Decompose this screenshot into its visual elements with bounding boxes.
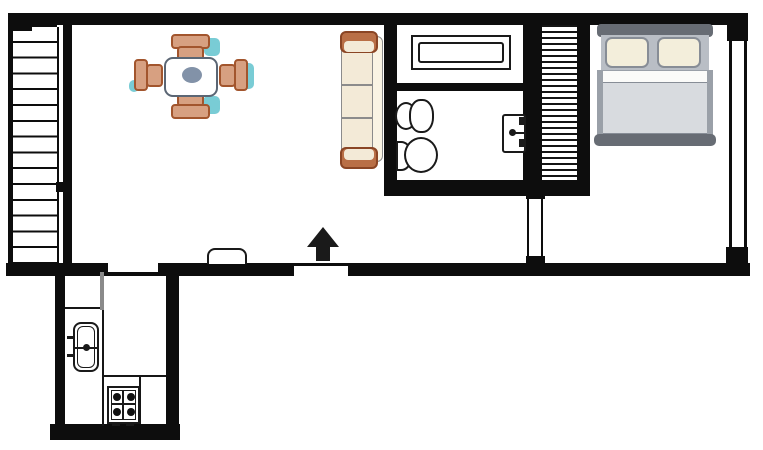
faucet-handle-icon [67, 336, 73, 339]
dining-chair-west-seat [146, 64, 163, 87]
dining-table-centerpiece [182, 67, 202, 83]
kitchen-bottom-wall [50, 424, 180, 440]
bathtub-basin [418, 42, 504, 63]
entrance-arrow-icon [305, 226, 341, 262]
bed-rail-left [597, 70, 603, 136]
bed [601, 82, 709, 134]
floor-plan [0, 0, 763, 450]
bathroom-closet-wall [523, 25, 542, 196]
sofa [341, 50, 373, 150]
bed-pillow-right [657, 37, 701, 68]
staircase-stringer-line [57, 27, 59, 263]
kitchen-door-opening [108, 263, 158, 272]
closet-hatch [542, 25, 577, 178]
tap-icon [509, 129, 516, 136]
kitchen-door-leaf [100, 272, 104, 310]
bedroom-door-jamb-left [527, 197, 529, 258]
kitchen-counter-line [104, 375, 166, 377]
toilet [404, 137, 438, 173]
window-outer-line [744, 39, 747, 249]
kitchen-counter-line [102, 307, 104, 426]
washbasin [409, 99, 434, 133]
bed-pillow-left [605, 37, 649, 68]
right-wall-bottom [726, 247, 748, 276]
dining-chair-south [171, 104, 210, 119]
bed-rail-right [707, 70, 713, 136]
door-threshold [207, 248, 247, 264]
stove-knob [112, 422, 120, 426]
burner-icon [127, 408, 135, 416]
stove-grid-line [111, 403, 136, 405]
entrance-door-opening [294, 266, 348, 276]
dining-chair-east [234, 59, 248, 91]
faucet-handle-icon [67, 354, 73, 357]
bed-footboard [594, 134, 716, 146]
kitchen-counter-line [65, 307, 103, 309]
stove-knob [126, 422, 134, 426]
bedroom-door-jamb-right [541, 197, 543, 258]
burner-icon [113, 393, 121, 401]
staircase-right-wall [63, 25, 72, 263]
staircase [13, 25, 57, 263]
kitchen-left-wall [55, 276, 65, 426]
burner-icon [127, 393, 135, 401]
wall-tap-unit-bracket [519, 139, 525, 147]
sofa-armrest-pad [344, 41, 374, 52]
sofa-cushion-line [342, 84, 372, 86]
bedroom-wall-lower [526, 256, 545, 276]
wall-tap-unit-bracket [519, 117, 525, 125]
kitchen-right-wall [166, 276, 179, 424]
dining-chair-east-seat [219, 64, 236, 87]
stove-grid-line [122, 390, 124, 420]
window-inner-line [729, 39, 732, 249]
sofa-cushion-line [342, 117, 372, 119]
bathroom-divider-wall [397, 83, 523, 91]
bathroom-bottom-wall [384, 180, 590, 196]
faucet-icon [83, 344, 90, 351]
staircase-landing-connector [56, 182, 72, 192]
closet-right-wall [577, 25, 590, 182]
burner-icon [113, 408, 121, 416]
right-wall-top [727, 13, 748, 41]
sofa-armrest-pad [344, 149, 374, 160]
